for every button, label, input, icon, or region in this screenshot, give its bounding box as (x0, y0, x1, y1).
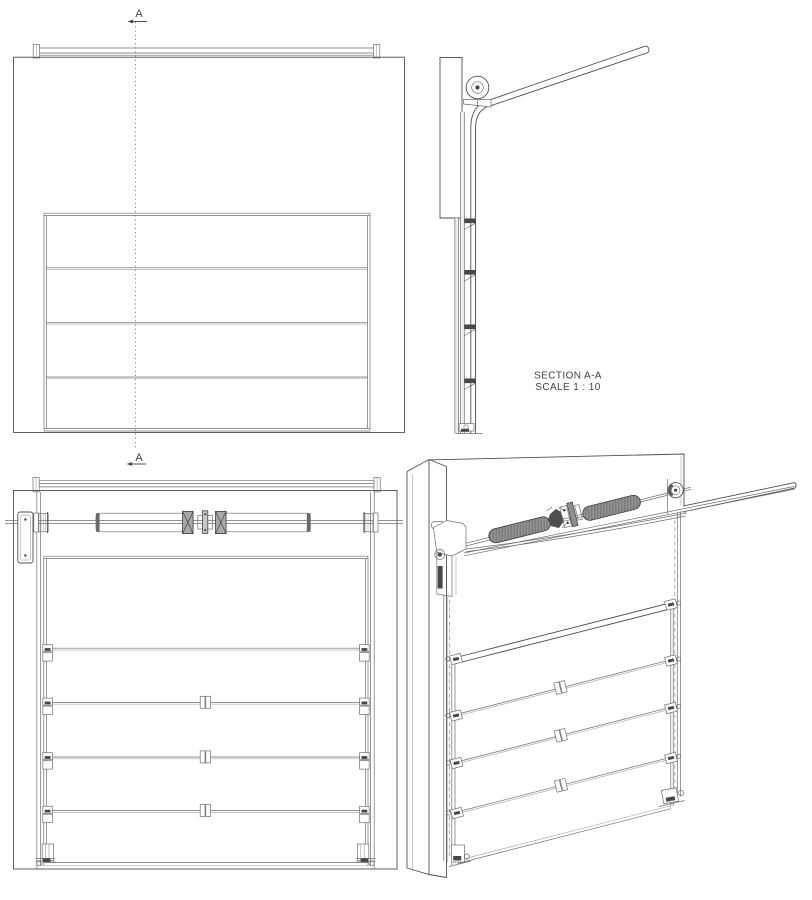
side-hinge (665, 752, 681, 763)
section-marker-bottom-label: A (135, 452, 143, 464)
center-hinge (554, 681, 567, 695)
hinges-iso (446, 599, 681, 819)
torsion-spring-left (96, 511, 193, 533)
section-arrow-icon (127, 462, 133, 466)
side-hinge (446, 757, 463, 768)
exterior-front-view: A A (14, 8, 405, 466)
side-hinge (665, 655, 681, 666)
vertical-track-right (371, 491, 375, 870)
wall-outline (14, 57, 405, 432)
cable-bracket-left-iso (432, 521, 467, 597)
door-panels-interior (44, 556, 368, 866)
side-hinge (446, 710, 463, 721)
horizontal-track (464, 483, 796, 556)
vertical-track-left (37, 491, 41, 870)
track-end-cap (645, 46, 649, 53)
section-marker-top-label: A (135, 8, 143, 20)
roller-bracket (465, 219, 476, 230)
interior-front-view (5, 477, 403, 869)
cable-drum-left (34, 512, 48, 533)
section-a-a-view: SECTION A-A SCALE 1 : 10 (440, 46, 649, 433)
section-scale: SCALE 1 : 10 (535, 382, 600, 393)
panel-seam (46, 268, 367, 379)
roller-bracket (465, 379, 476, 390)
torsion-spring-right-iso (581, 494, 642, 522)
bottom-bracket-left-iso (449, 845, 471, 867)
header-rail (33, 45, 380, 59)
vertical-track-left-iso (444, 595, 450, 863)
side-hinge (665, 599, 681, 610)
drawing-sheet: A A (0, 0, 812, 900)
side-hinge (360, 806, 370, 822)
brick-wall-hatch (440, 58, 462, 219)
door-panel-section (460, 112, 464, 434)
torsion-drum-section (464, 76, 492, 107)
side-hinge (360, 698, 370, 714)
wall-post (407, 460, 447, 878)
panel-seam (44, 648, 368, 812)
door-top-edge (456, 603, 671, 664)
side-hinge (43, 753, 53, 769)
side-hinge (360, 645, 370, 661)
wall-reveal (455, 218, 459, 434)
bottom-bracket-right-iso (659, 788, 685, 807)
door-panels-exterior (44, 213, 370, 431)
side-hinge (43, 698, 53, 714)
side-hinge (446, 653, 463, 664)
isometric-view (407, 454, 796, 878)
section-title: SECTION A-A (534, 371, 602, 382)
header-rail (33, 477, 380, 492)
side-hinges (43, 645, 369, 823)
cable-drum-right-iso (668, 479, 692, 514)
winding-cone (183, 511, 194, 533)
roller-bracket-row (465, 219, 476, 390)
roller-bracket (465, 270, 476, 281)
roller-bracket (465, 325, 476, 336)
track-end-cap (795, 483, 797, 488)
side-hinge (43, 806, 53, 822)
winding-cone (216, 511, 227, 533)
center-bearing-coupler (198, 511, 213, 534)
winding-cone-coupler-iso (547, 501, 584, 529)
cable-bracket-left (18, 512, 33, 563)
section-marker-bottom: A (127, 452, 147, 466)
side-hinge (43, 645, 53, 661)
section-arrow-icon (128, 20, 134, 24)
section-marker-top: A (128, 8, 148, 23)
side-hinge (665, 702, 681, 713)
side-hinge (447, 807, 464, 818)
technical-drawing-canvas: A A (0, 0, 812, 900)
side-hinge (360, 753, 370, 769)
center-hinges (200, 696, 210, 816)
torsion-spring-right (216, 511, 311, 533)
